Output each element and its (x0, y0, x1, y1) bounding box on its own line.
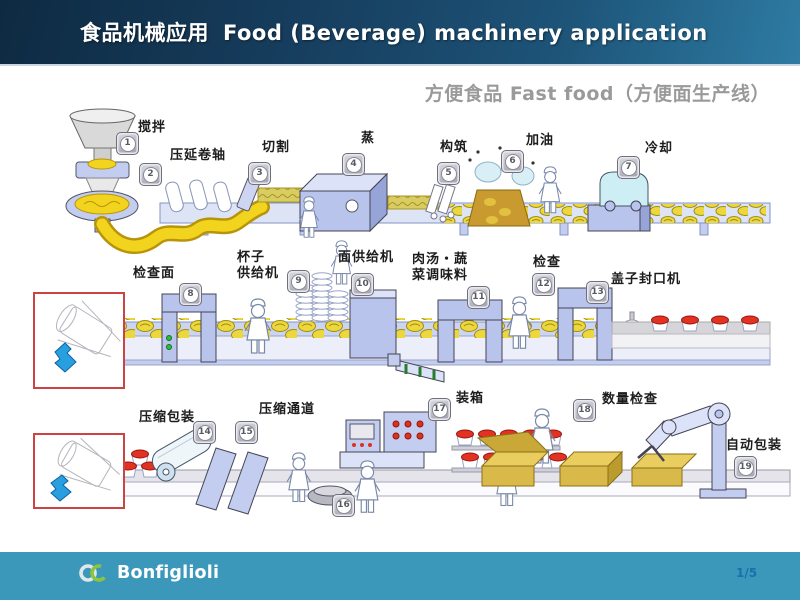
station-17-badge: 17 (428, 398, 451, 421)
gearmotor-inset-bottom (33, 433, 125, 509)
station-6-label: 加油 (526, 133, 554, 149)
station-12-label: 检查 (533, 255, 561, 271)
station-10-badge: 10 (351, 273, 374, 296)
station-15-label: 压缩通道 (259, 402, 315, 418)
station-8-badge: 8 (179, 283, 202, 306)
station-15-badge: 15 (235, 421, 258, 444)
station-18-badge: 18 (573, 399, 596, 422)
station-3-badge: 3 (248, 162, 271, 185)
station-2-label: 压延卷轴 (170, 148, 226, 164)
station-19-label: 自动包装 (726, 438, 782, 454)
slide: 食品机械应用Food (Beverage) machinery applicat… (0, 0, 800, 600)
station-6-badge: 6 (501, 150, 524, 173)
mixer-machine (66, 109, 138, 232)
station-17-label: 装箱 (456, 391, 484, 407)
station-8-label: 检查面 (133, 266, 175, 282)
station-9-badge: 9 (287, 270, 310, 293)
station-5-label: 构筑 (440, 140, 468, 156)
steamer-machine (299, 174, 387, 237)
station-9-label: 杯子 供给机 (237, 250, 279, 283)
station-2-badge: 2 (139, 163, 162, 186)
station-3-label: 切割 (262, 140, 290, 156)
station-5-badge: 5 (437, 162, 460, 185)
station-14-badge: 14 (193, 421, 216, 444)
station-7-badge: 7 (617, 156, 640, 179)
station-14-label: 压缩包装 (139, 410, 195, 426)
station-7-label: 冷却 (645, 141, 673, 157)
gearmotor-inset-top (33, 292, 125, 389)
rolling-reels (164, 179, 232, 213)
station-10-label: 面供给机 (338, 250, 394, 266)
station-12-badge: 12 (532, 273, 555, 296)
station-19-badge: 19 (734, 456, 757, 479)
cooling-machine (588, 172, 650, 231)
station-4-label: 蒸 (361, 131, 375, 147)
control-panel-machine (287, 412, 436, 512)
station-18-label: 数量检查 (602, 392, 658, 408)
station-1-badge: 1 (116, 132, 139, 155)
station-13-label: 盖子封口机 (611, 272, 681, 288)
station-4-badge: 4 (342, 153, 365, 176)
station-16-badge: 16 (332, 494, 355, 517)
station-11-label: 肉汤・蔬 菜调味料 (412, 252, 468, 285)
station-11-badge: 11 (467, 286, 490, 309)
station-1-label: 搅拌 (138, 120, 166, 136)
station-13-badge: 13 (586, 281, 609, 304)
